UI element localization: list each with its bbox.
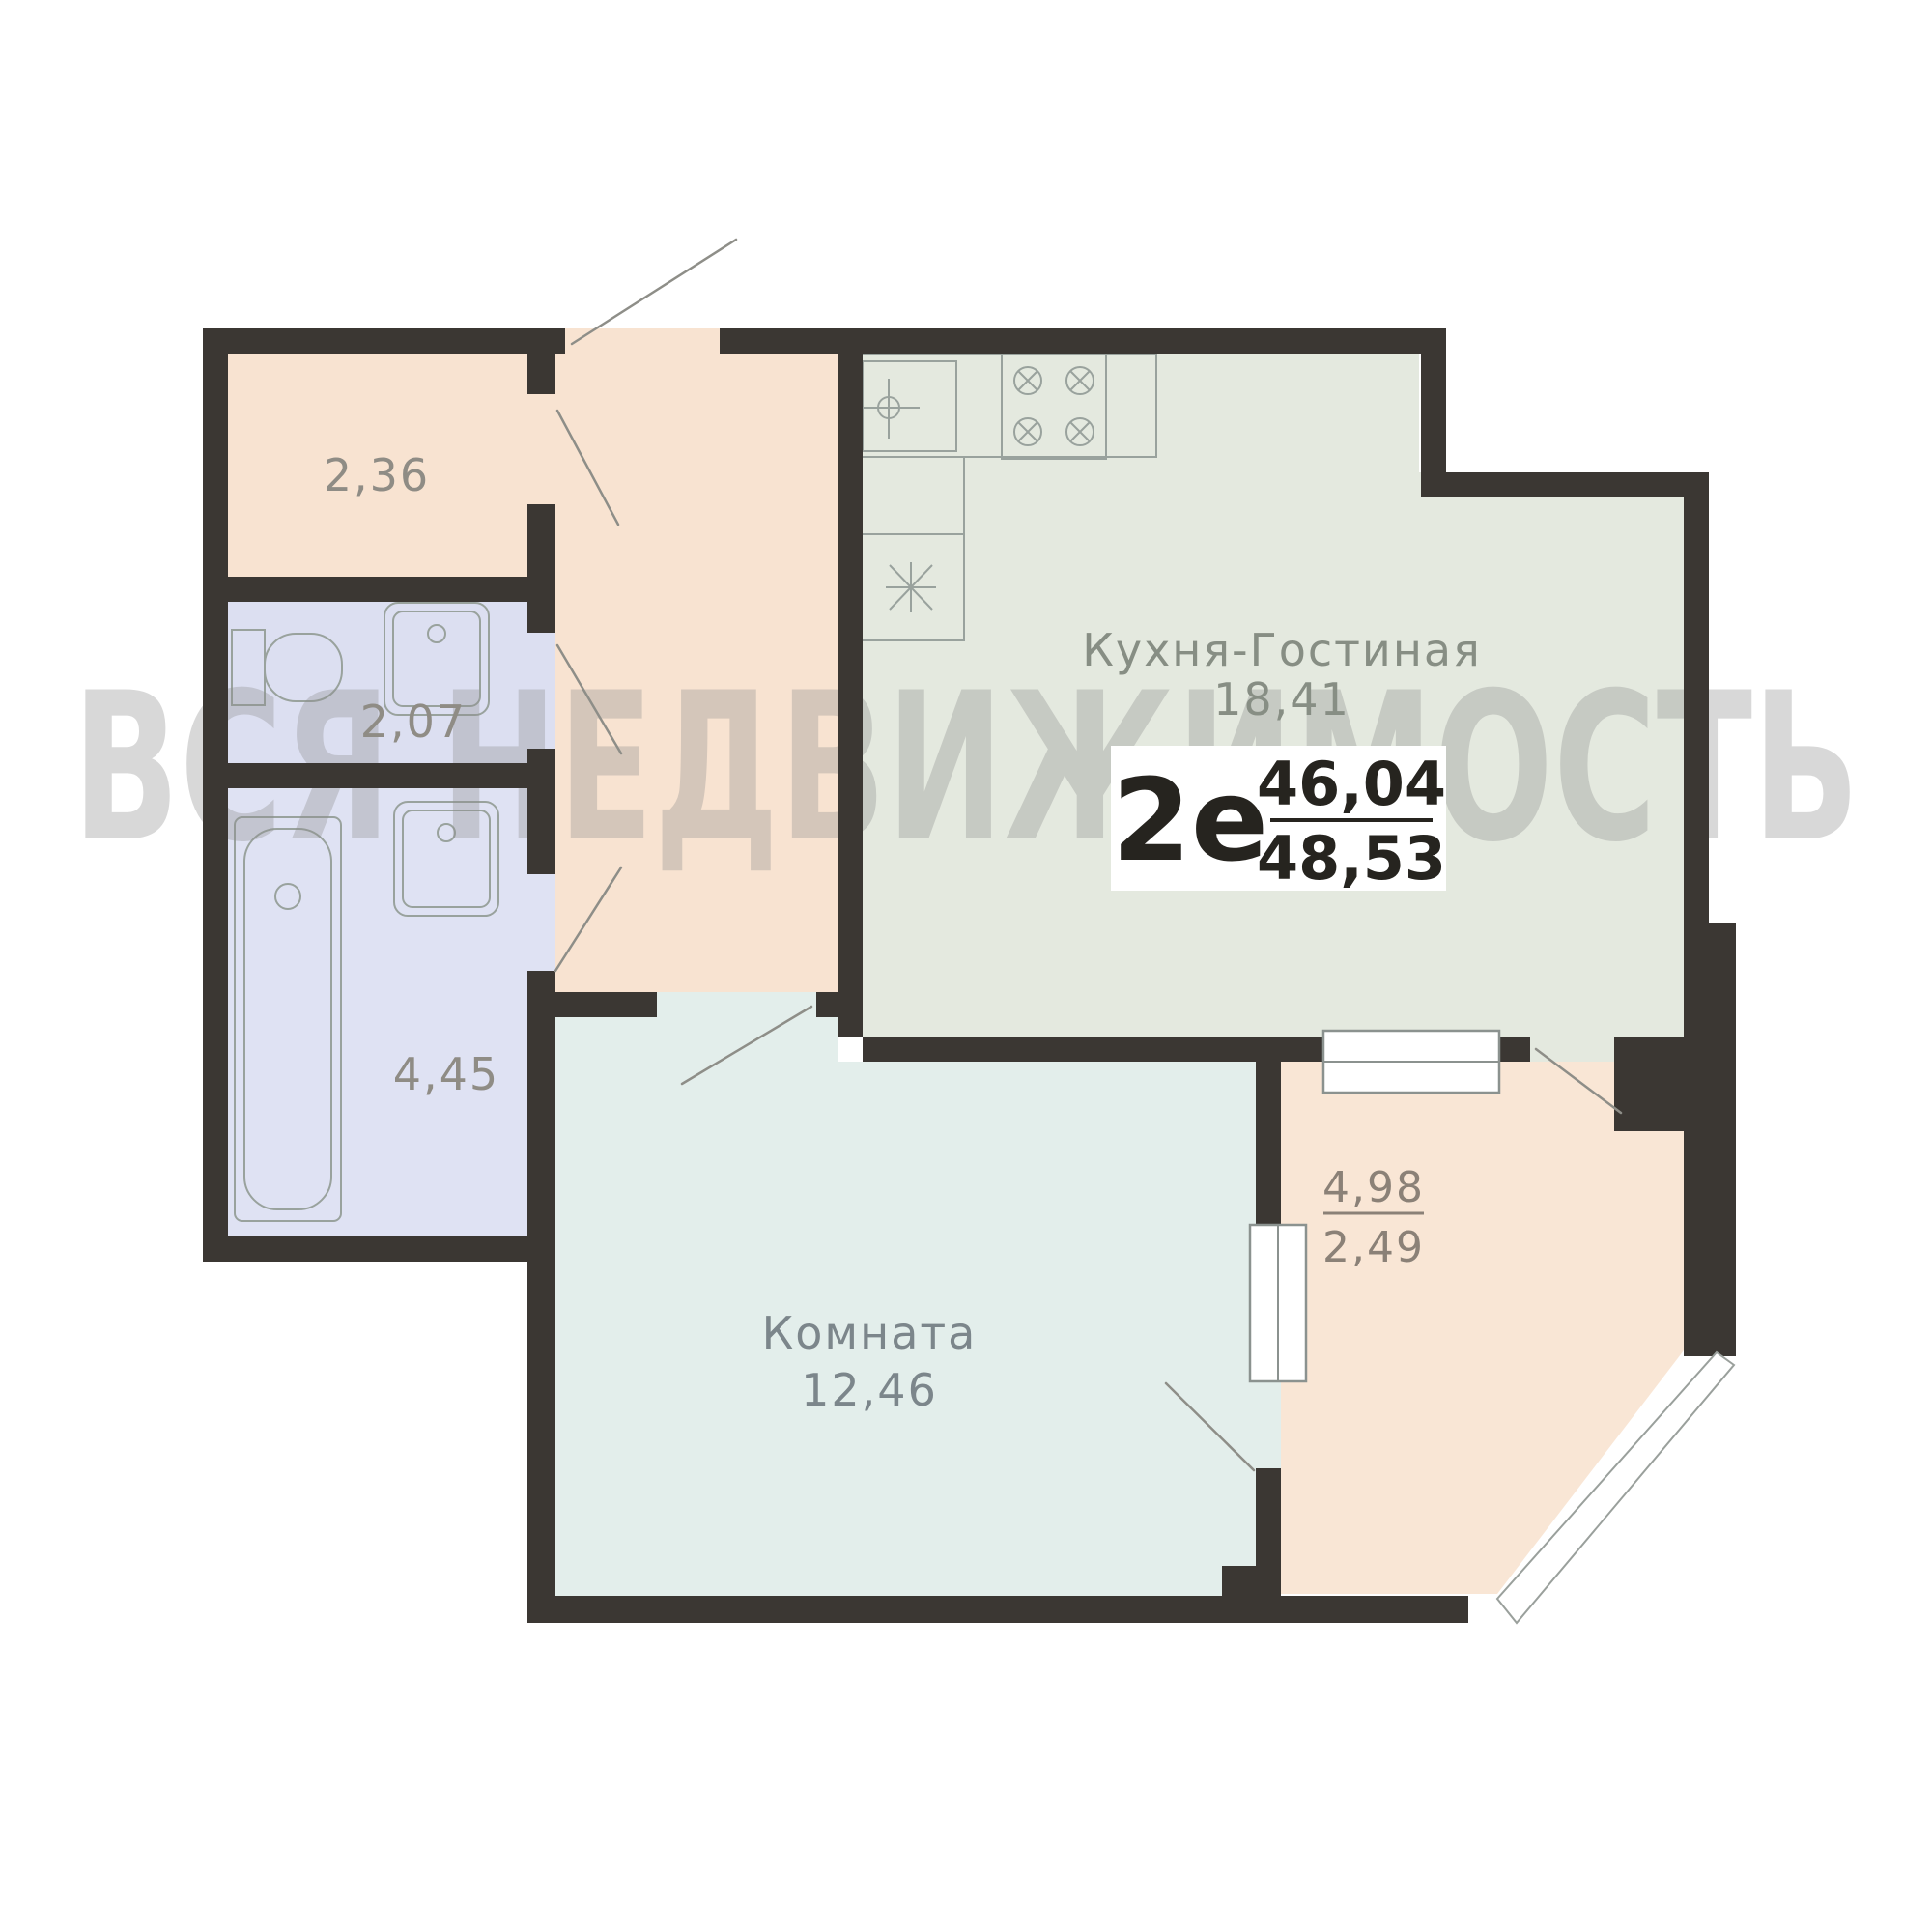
- wall-right-upper: [1684, 472, 1709, 923]
- badge-type-label: 2е: [1112, 753, 1268, 887]
- wall-hall-wc: [203, 577, 555, 602]
- wall-step-vertical: [1421, 328, 1446, 497]
- wall-bottom: [527, 1596, 1468, 1623]
- bedroom-area-label: 12,46: [801, 1364, 938, 1416]
- kitchen-name-label: Кухня-Гостиная: [1082, 624, 1482, 676]
- kitchen-area-label: 18,41: [1213, 673, 1350, 725]
- wall-corridor-line-1: [527, 354, 555, 394]
- balcony-area-reduced: 2,49: [1322, 1223, 1425, 1272]
- wall-top-left: [203, 328, 565, 354]
- badge-area-total: 46,04: [1257, 749, 1446, 819]
- balcony-door-opening-bedroom: [1256, 1381, 1281, 1468]
- wc-area-label: 2,07: [360, 696, 467, 748]
- balcony-door-opening-kitchen: [1530, 1037, 1614, 1062]
- wall-bathroom-bottom: [203, 1236, 555, 1262]
- wall-bottom-step: [1222, 1566, 1281, 1596]
- balcony-area-full: 4,98: [1322, 1163, 1425, 1212]
- bathroom-area-label: 4,45: [393, 1048, 499, 1100]
- window-kitchen-balcony: [1323, 1031, 1499, 1093]
- badge-area-with-balcony: 48,53: [1257, 823, 1446, 894]
- wall-bedroom-top-left: [555, 992, 657, 1017]
- room-balcony-floor: [1281, 1062, 1684, 1594]
- floor-plan-page: ВСЯ НЕДВИЖИМОСТЬ: [0, 0, 1932, 1932]
- wall-kitchen-bottom-right: [1614, 1037, 1736, 1062]
- area-badge: 2е 46,04 48,53: [1111, 746, 1446, 894]
- hall-area-label: 2,36: [324, 449, 430, 501]
- floor-plan: ВСЯ НЕДВИЖИМОСТЬ: [0, 0, 1932, 1932]
- wall-step-horizontal: [1421, 472, 1709, 497]
- wall-balcony-door-pier: [1614, 1062, 1686, 1131]
- wall-bedroom-left: [527, 992, 555, 1596]
- entry-door-swing: [572, 240, 736, 344]
- wall-left-outer: [203, 328, 228, 1262]
- wall-corridor-line-3: [527, 749, 555, 874]
- bedroom-door-opening: [657, 992, 816, 1017]
- wall-wc-bathroom: [203, 763, 555, 788]
- window-bedroom-balcony: [1250, 1225, 1306, 1381]
- wall-corridor-kitchen: [838, 354, 863, 1037]
- hall-door-opening: [527, 394, 555, 504]
- wall-top-right: [720, 328, 1446, 354]
- wall-right-lower: [1684, 923, 1736, 1356]
- bedroom-name-label: Комната: [762, 1307, 978, 1359]
- bathroom-door-opening: [527, 874, 555, 971]
- wall-bedroom-balcony-upper: [1256, 1062, 1281, 1225]
- room-fills: [228, 328, 1684, 1596]
- wall-corridor-line-2: [527, 504, 555, 633]
